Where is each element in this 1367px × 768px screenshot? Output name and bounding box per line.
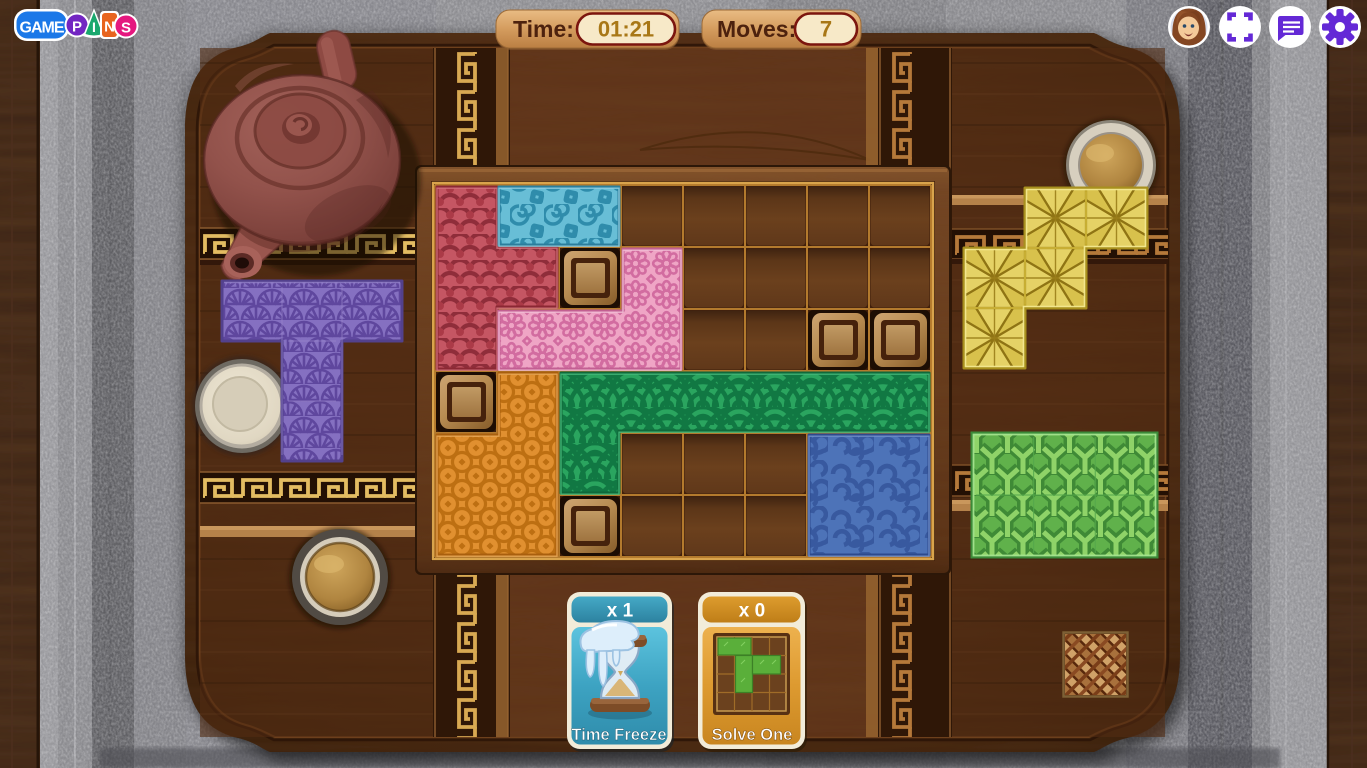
svg-text:I: I (92, 19, 96, 35)
svg-text:x 1: x 1 (607, 601, 634, 622)
svg-text:01:21: 01:21 (598, 17, 654, 42)
svg-text:Moves:: Moves: (717, 16, 796, 42)
svg-text:Solve One: Solve One (712, 726, 793, 744)
svg-text:x 0: x 0 (739, 601, 765, 622)
svg-text:Time Freeze: Time Freeze (571, 726, 666, 744)
svg-text:Time:: Time: (513, 16, 574, 42)
svg-text:7: 7 (820, 17, 832, 42)
svg-text:P: P (72, 19, 82, 36)
svg-text:N: N (104, 19, 115, 36)
svg-text:S: S (121, 20, 131, 37)
svg-text:GAME: GAME (20, 20, 65, 37)
